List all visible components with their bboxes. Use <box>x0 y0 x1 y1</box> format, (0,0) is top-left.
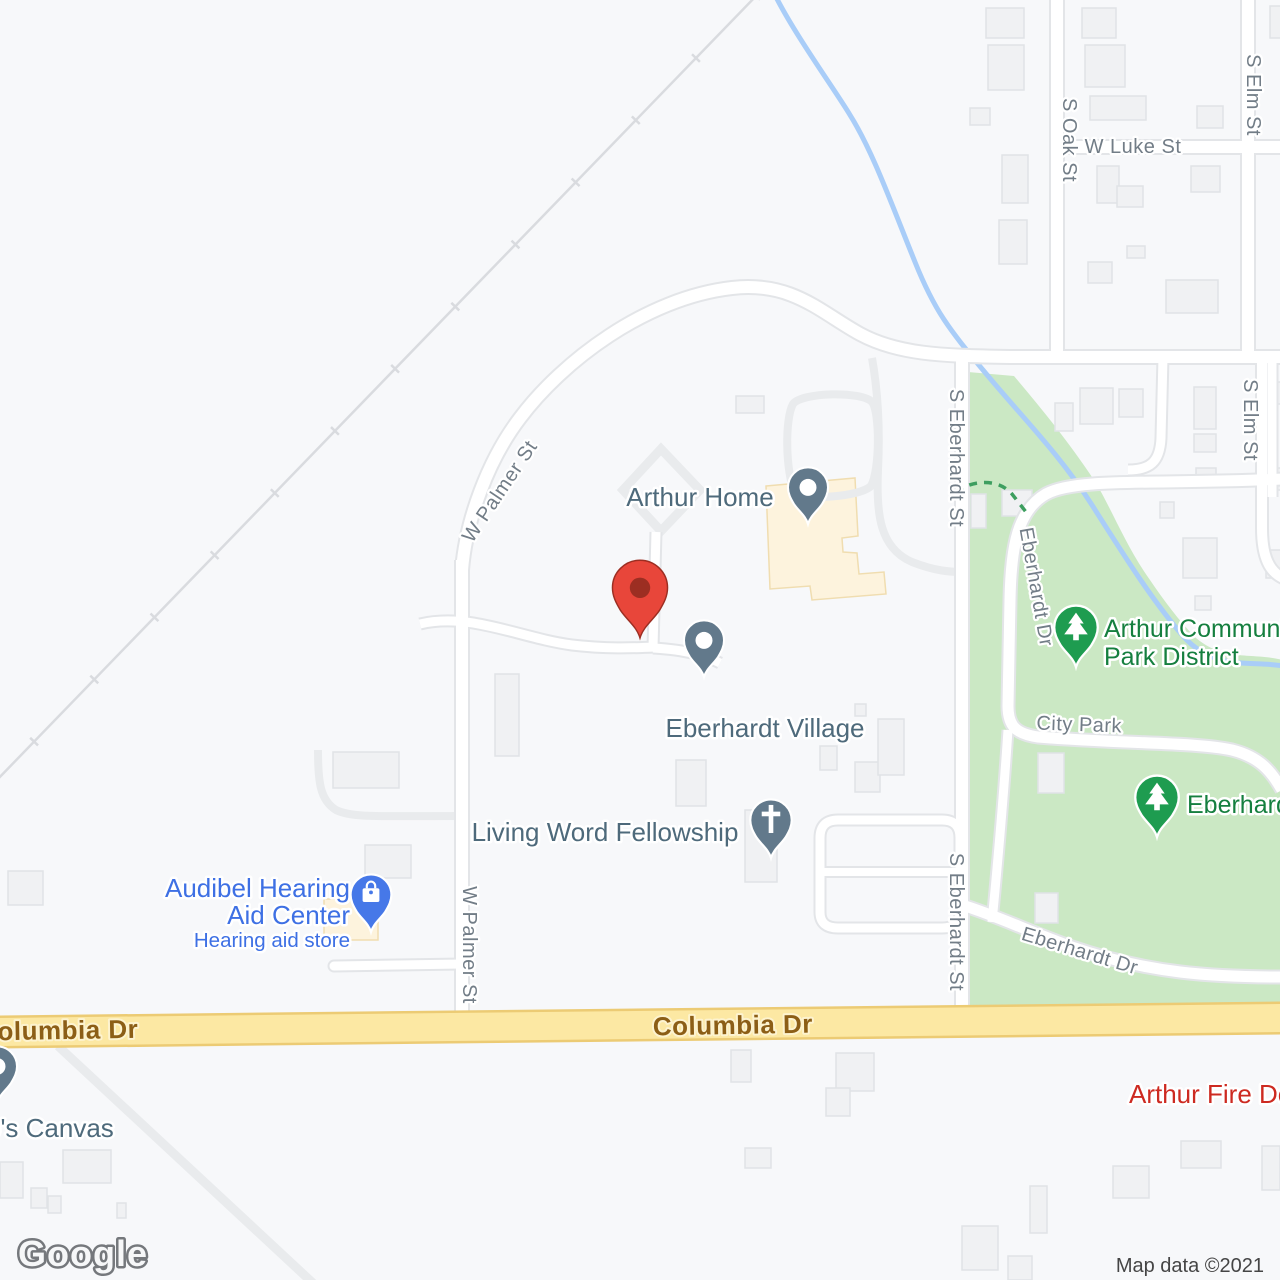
building-footprint <box>1080 388 1113 424</box>
building-footprint <box>999 220 1027 264</box>
street-label: S Eberhardt St <box>945 389 967 527</box>
building-footprint <box>855 762 880 792</box>
building-footprint <box>63 1150 111 1183</box>
poi-label[interactable]: Eberhardt <box>1187 791 1280 819</box>
building-footprint <box>986 8 1024 38</box>
street-label: S Eberhardt St <box>945 853 967 991</box>
building-footprint <box>0 1162 23 1198</box>
map-data-attribution: Map data ©2021 <box>1116 1255 1264 1277</box>
building-footprint <box>1038 753 1064 793</box>
poi-label[interactable]: Arthur Home <box>626 482 773 512</box>
building-footprint <box>1055 403 1073 431</box>
building-footprint <box>745 1148 771 1168</box>
poi-label[interactable]: Audibel Hearing <box>165 873 350 903</box>
building-footprint <box>1119 389 1143 417</box>
building-footprint <box>988 45 1024 90</box>
building-footprint <box>1181 1141 1221 1168</box>
building-footprint <box>1166 280 1218 313</box>
building-footprint <box>1002 155 1028 203</box>
street-label: S Elm St <box>1242 54 1264 136</box>
street-label: olumbia Dr <box>0 1014 138 1046</box>
building-footprint <box>8 871 43 905</box>
poi-label[interactable]: o's Canvas <box>0 1113 114 1143</box>
building-footprint <box>820 746 837 770</box>
street-label: W Palmer St <box>458 886 480 1004</box>
building-footprint <box>1191 166 1220 192</box>
building-footprint <box>48 1196 61 1213</box>
building-footprint <box>495 674 519 756</box>
street-label: Columbia Dr <box>653 1009 814 1042</box>
building-footprint <box>971 494 986 528</box>
street-label: S Elm St <box>1239 379 1261 461</box>
building-footprint <box>1088 262 1112 283</box>
building-footprint <box>1113 1166 1149 1198</box>
map-viewport[interactable]: W Luke StS Oak StS Elm StS Elm StW Palme… <box>0 0 1280 1280</box>
building-footprint <box>970 108 990 125</box>
building-footprint <box>1035 893 1058 923</box>
building-footprint <box>1008 1256 1032 1280</box>
building-footprint <box>1194 387 1216 429</box>
building-footprint <box>962 1226 998 1270</box>
street-label: S Oak St <box>1058 98 1080 182</box>
building-footprint <box>365 845 411 878</box>
building-footprint <box>31 1188 47 1208</box>
building-footprint <box>1097 166 1119 203</box>
poi-label[interactable]: Hearing aid store <box>194 929 350 952</box>
building-footprint <box>1030 1186 1047 1233</box>
street-label: W Luke St <box>1085 136 1182 158</box>
building-footprint <box>1160 502 1174 518</box>
building-footprint <box>333 752 399 788</box>
poi-arthur-fire-dept[interactable]: Arthur Fire Dept <box>1129 1079 1280 1109</box>
google-logo[interactable]: Google <box>18 1233 148 1274</box>
building-footprint <box>117 1203 126 1218</box>
building-footprint <box>1090 96 1146 120</box>
building-footprint <box>1194 434 1216 452</box>
poi-label[interactable]: Arthur Community <box>1104 615 1280 643</box>
building-footprint <box>1270 6 1280 38</box>
building-footprint <box>731 1050 751 1082</box>
building-footprint <box>1127 246 1145 258</box>
building-footprint <box>878 719 904 775</box>
building-footprint <box>1197 106 1223 128</box>
building-footprint <box>1085 45 1125 87</box>
building-footprint <box>676 760 706 806</box>
poi-label[interactable]: Arthur Fire Dept <box>1129 1079 1280 1109</box>
building-footprint <box>1195 596 1211 610</box>
poi-label[interactable]: Living Word Fellowship <box>472 817 739 847</box>
building-footprint <box>1117 186 1143 207</box>
poi-label[interactable]: Eberhardt Village <box>666 713 865 743</box>
building-footprint <box>836 1053 874 1091</box>
building-footprint <box>736 396 764 413</box>
columbia-dr-road <box>0 1018 1280 1032</box>
poi-label[interactable]: Park District <box>1104 643 1239 671</box>
building-footprint <box>1183 538 1217 578</box>
building-footprint <box>1082 8 1116 38</box>
poi-label[interactable]: Aid Center <box>227 900 350 930</box>
building-footprint <box>1262 1146 1280 1190</box>
street-label: City Park <box>1036 713 1123 738</box>
building-footprint <box>826 1088 850 1116</box>
